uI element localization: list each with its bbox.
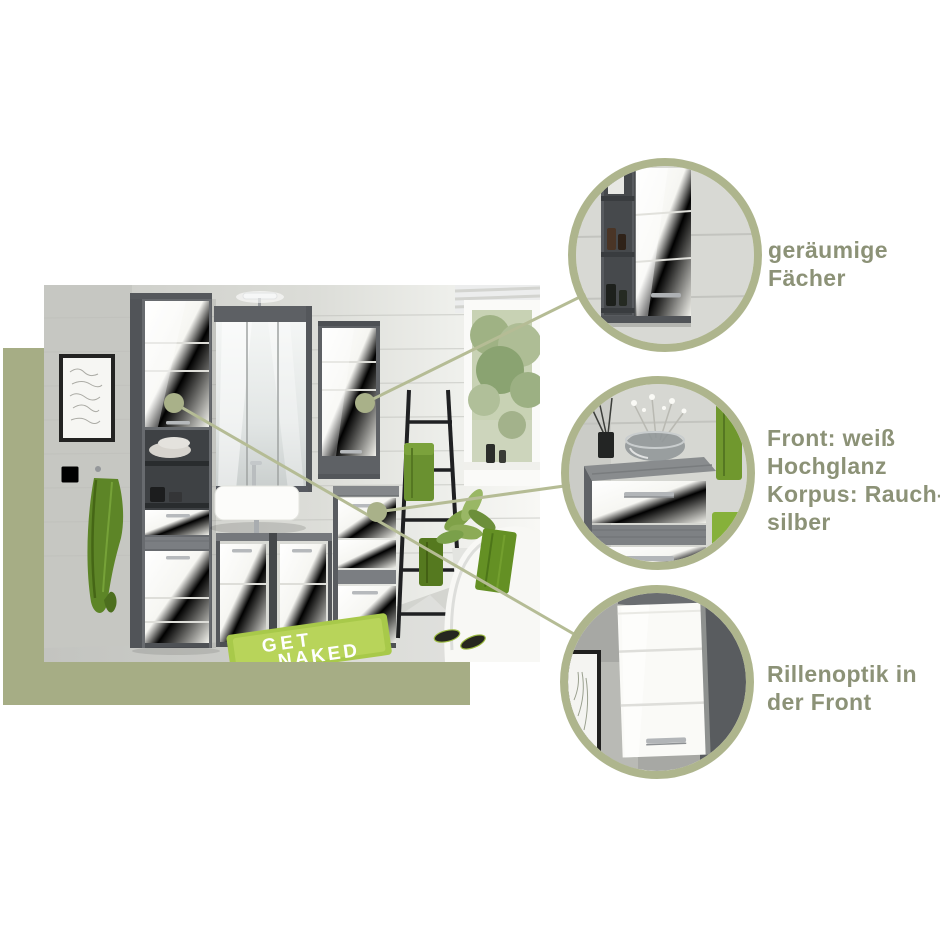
label-line: geräumige <box>768 236 888 264</box>
callout-circle-front <box>565 380 751 586</box>
mirror-cabinet <box>214 291 312 492</box>
handle <box>166 421 190 425</box>
handle <box>340 450 362 454</box>
open-shelf-niche <box>145 430 209 510</box>
anchor-dot-shelves <box>355 393 375 413</box>
anchor-dot-front <box>367 502 387 522</box>
label-line: der Front <box>767 688 917 716</box>
accent-band <box>338 570 396 584</box>
bathroom-photo: GET NAKED <box>44 285 546 679</box>
label-line: Hochglanz <box>767 452 940 480</box>
callout-label-shelves: geräumige Fächer <box>768 236 888 292</box>
tall-cabinet-drawer <box>145 510 209 535</box>
zoom-open-cabinet <box>601 168 691 327</box>
callout-label-grooves: Rillenoptik in der Front <box>767 660 917 716</box>
handle <box>352 591 378 595</box>
zoom-drawer <box>592 481 706 523</box>
callout-label-front: Front: weiß Hochglanz Korpus: Rauch- sil… <box>767 424 940 536</box>
towel-hook <box>95 466 101 472</box>
handle <box>651 293 681 298</box>
sill-bottle <box>486 444 495 463</box>
product-annotation-page: GET NAKED <box>0 0 940 940</box>
light-switch <box>61 466 79 483</box>
accent-band <box>145 537 209 549</box>
zoom-groove-door <box>617 603 710 758</box>
handle <box>292 549 312 553</box>
tall-cabinet <box>130 293 220 655</box>
label-line: Korpus: Rauch- <box>767 480 940 508</box>
handle <box>166 556 190 560</box>
label-line: Rillenoptik in <box>767 660 917 688</box>
window <box>455 285 546 486</box>
under-sink-door <box>220 544 266 642</box>
faucet <box>250 461 262 465</box>
callout-circle-grooves <box>564 589 750 775</box>
label-line: Front: weiß <box>767 424 940 452</box>
sill-bottle <box>499 450 506 463</box>
label-line: silber <box>767 508 940 536</box>
drain-pipe <box>254 520 259 535</box>
zoom-accent-band <box>592 525 706 545</box>
wall-picture <box>59 354 115 442</box>
label-line: Fächer <box>768 264 888 292</box>
anchor-dot-grooves <box>164 393 184 413</box>
left-wall <box>44 285 132 662</box>
callout-circle-shelves <box>572 162 758 348</box>
handle <box>166 514 190 518</box>
handle <box>232 549 252 553</box>
